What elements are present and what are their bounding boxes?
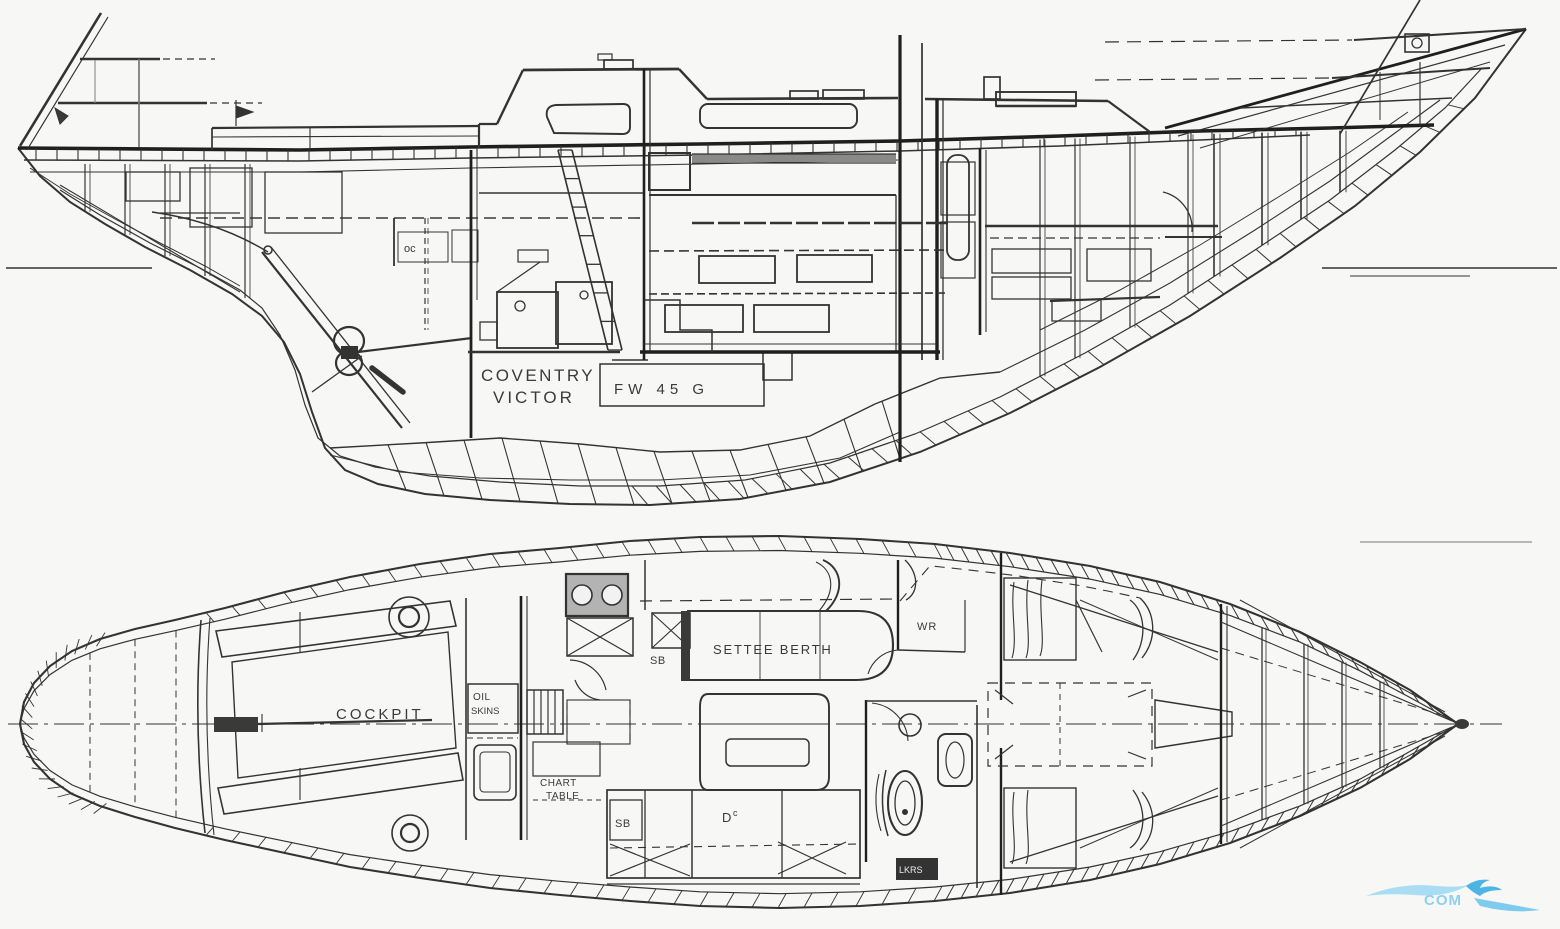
svg-text:FW 45 G: FW 45 G bbox=[614, 381, 709, 398]
svg-text:COVENTRY: COVENTRY bbox=[481, 366, 595, 385]
svg-text:CHART: CHART bbox=[540, 778, 577, 789]
svg-text:SB: SB bbox=[650, 655, 666, 667]
svg-text:D: D bbox=[722, 810, 731, 825]
svg-text:SETTEE BERTH: SETTEE BERTH bbox=[713, 642, 833, 657]
svg-text:WR: WR bbox=[917, 621, 937, 633]
svg-text:COM: COM bbox=[1424, 892, 1462, 909]
svg-text:SKINS: SKINS bbox=[471, 706, 500, 717]
svg-text:SB: SB bbox=[615, 818, 631, 830]
svg-text:OIL: OIL bbox=[473, 692, 491, 703]
svg-text:VICTOR: VICTOR bbox=[493, 388, 575, 407]
svg-text:LKRS: LKRS bbox=[899, 865, 923, 875]
svg-text:c: c bbox=[733, 808, 738, 818]
svg-text:oc: oc bbox=[404, 243, 416, 255]
